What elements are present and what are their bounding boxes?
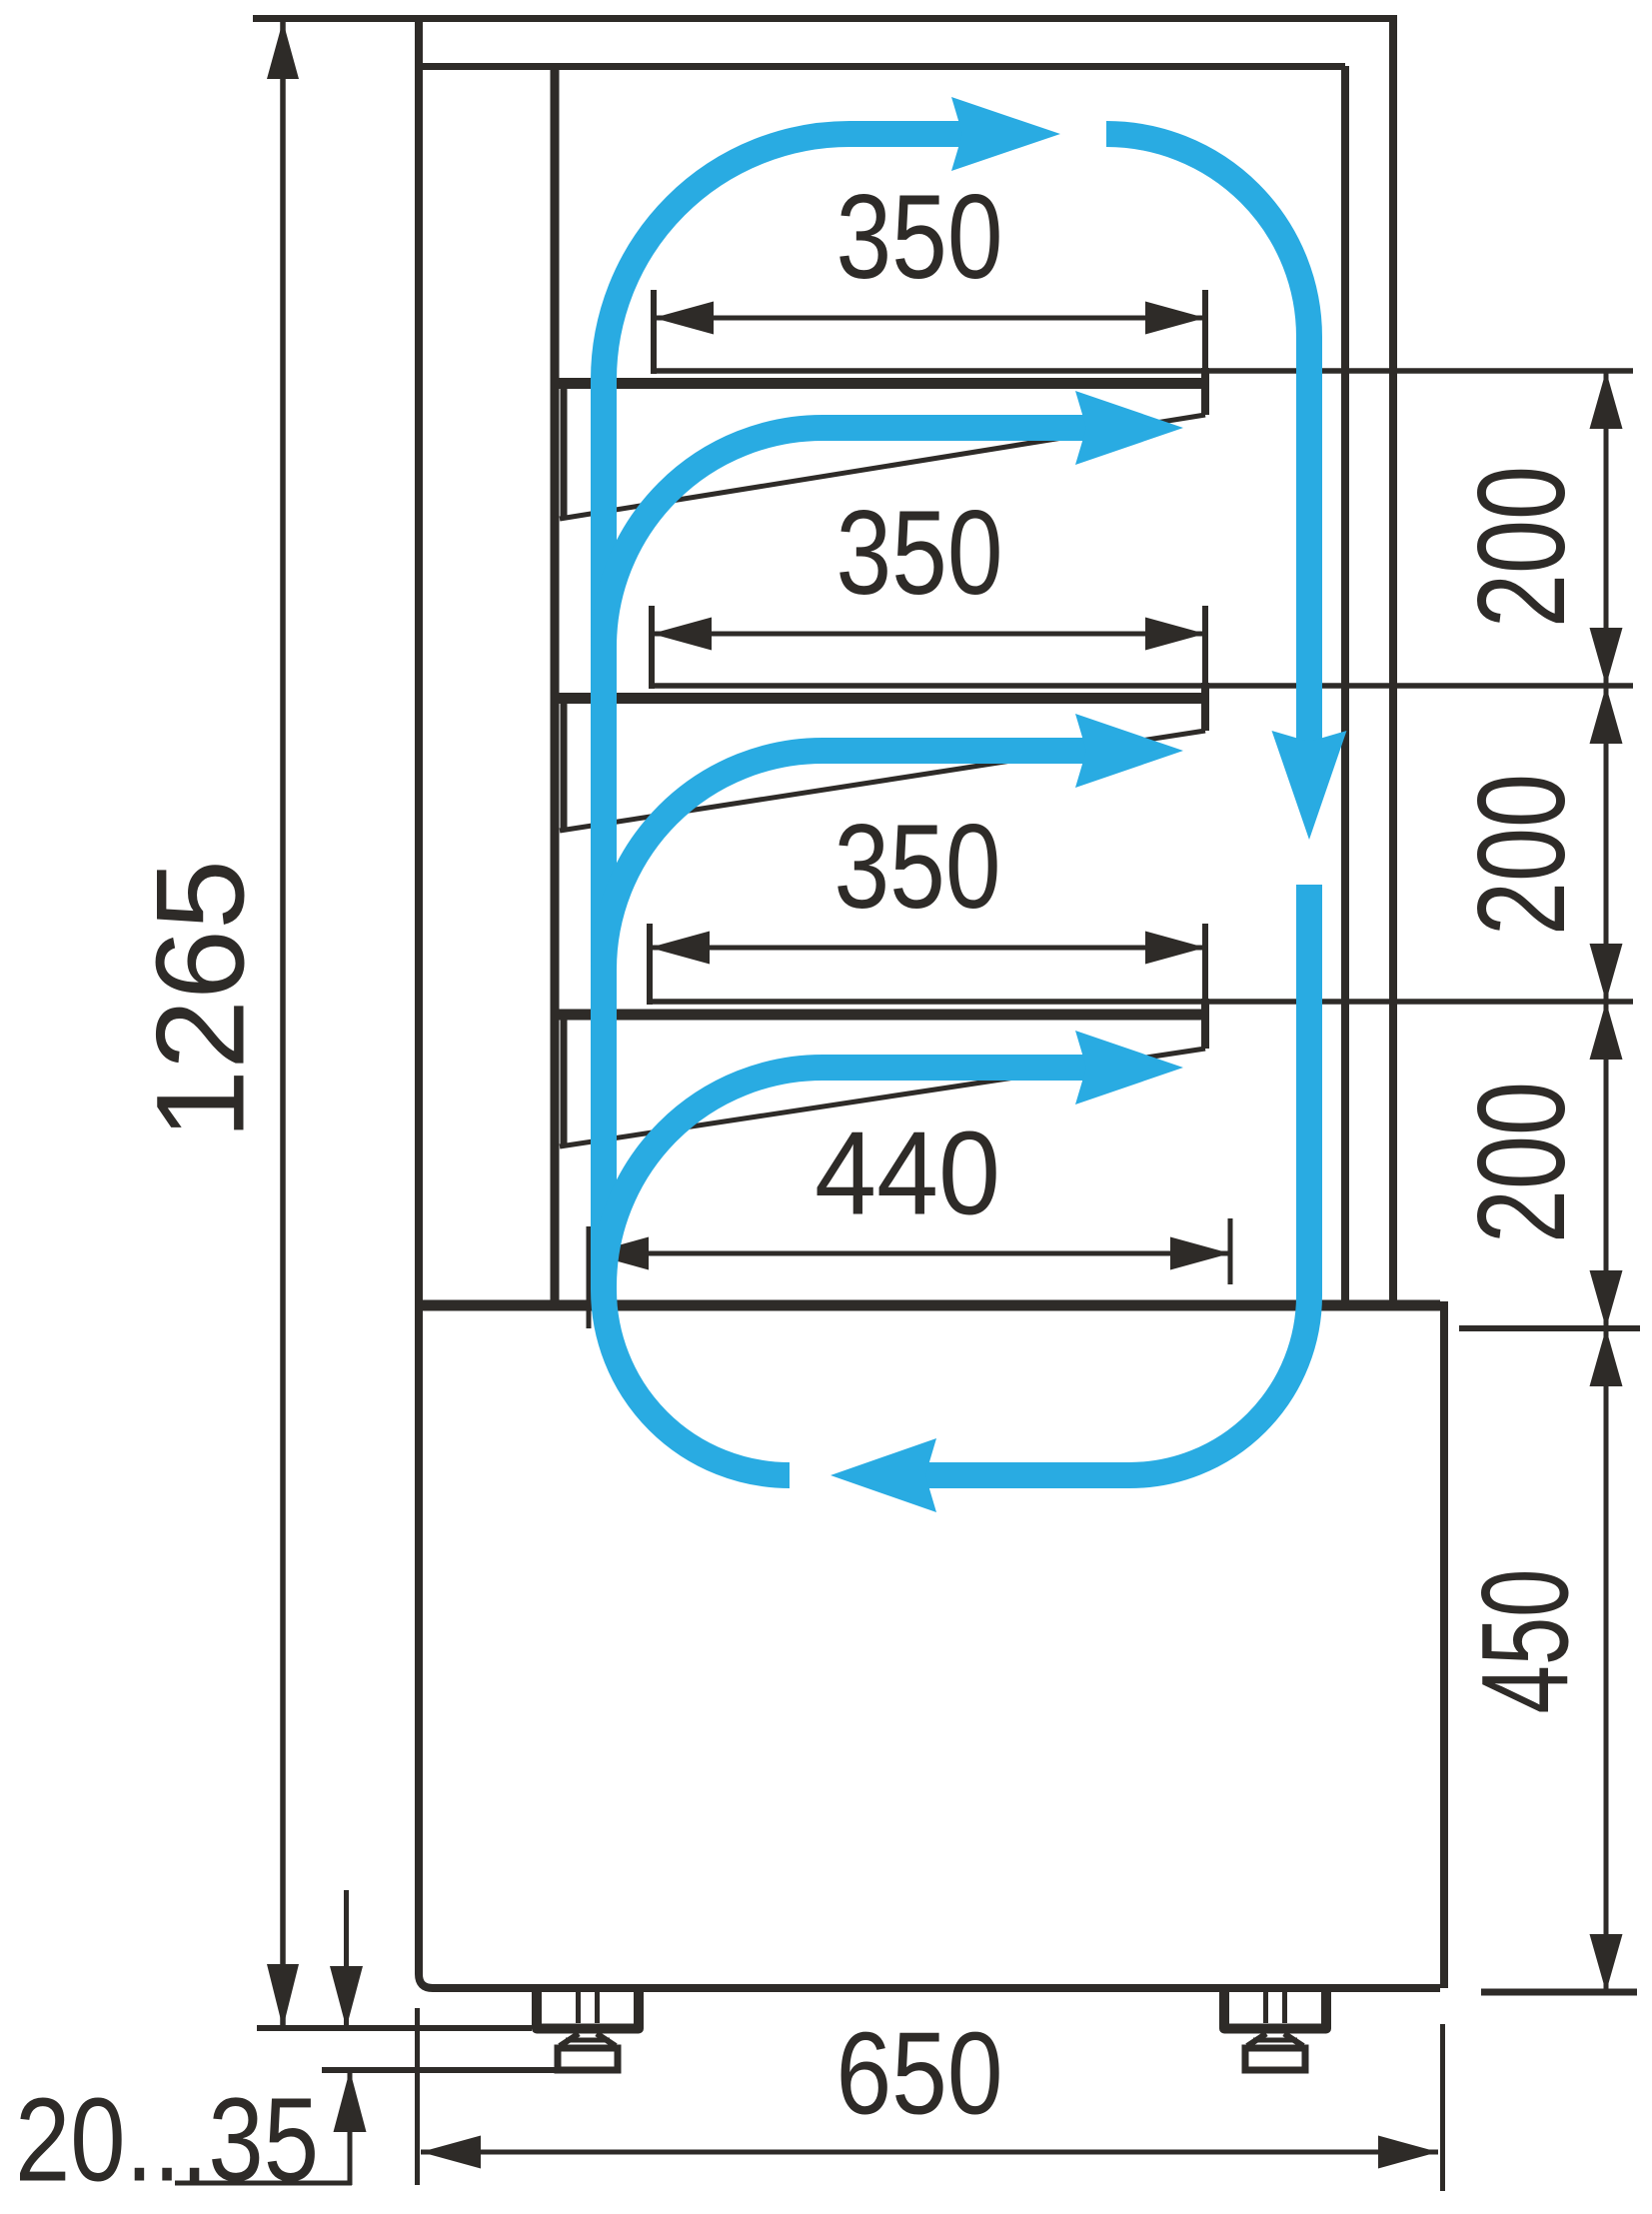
svg-text:200: 200 <box>1453 774 1591 936</box>
svg-text:450: 450 <box>1458 1569 1595 1714</box>
svg-text:1265: 1265 <box>132 860 271 1139</box>
svg-text:650: 650 <box>836 2008 1003 2139</box>
svg-text:20...35: 20...35 <box>15 2074 319 2207</box>
svg-text:200: 200 <box>1453 1082 1591 1243</box>
svg-text:440: 440 <box>815 1107 1000 1240</box>
svg-text:350: 350 <box>834 800 1001 934</box>
svg-text:350: 350 <box>836 486 1003 620</box>
svg-text:350: 350 <box>836 170 1003 304</box>
svg-text:200: 200 <box>1453 466 1591 628</box>
